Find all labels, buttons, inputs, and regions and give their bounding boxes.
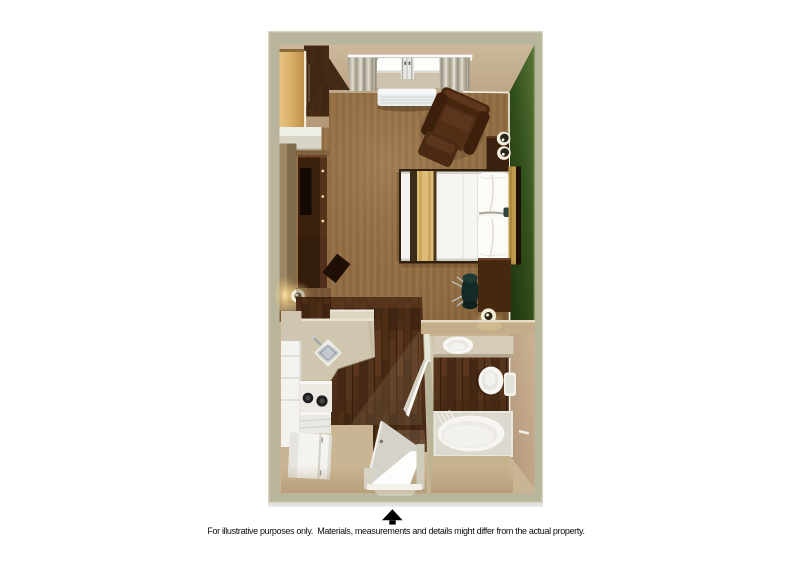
svg-text:For illustrative purposes only: For illustrative purposes only. Material… [207,526,584,536]
